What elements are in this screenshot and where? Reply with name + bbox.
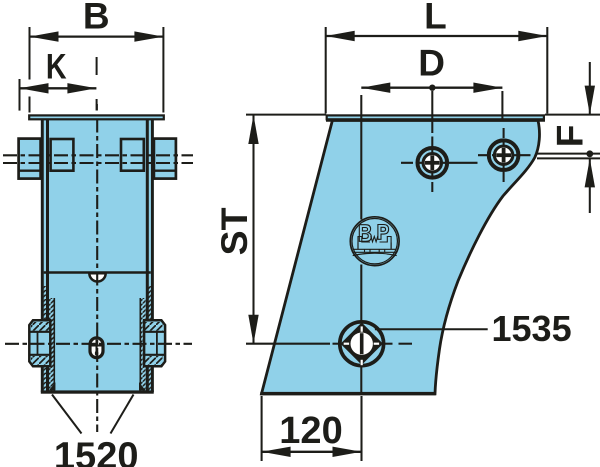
svg-text:120: 120 (279, 410, 342, 452)
svg-text:B: B (83, 0, 110, 37)
svg-text:1520: 1520 (54, 436, 139, 467)
svg-text:ST: ST (213, 207, 255, 255)
svg-text:F: F (550, 125, 591, 148)
svg-text:L: L (424, 0, 447, 36)
svg-text:K: K (46, 47, 67, 86)
svg-text:D: D (418, 43, 445, 84)
svg-text:1535: 1535 (492, 308, 572, 349)
